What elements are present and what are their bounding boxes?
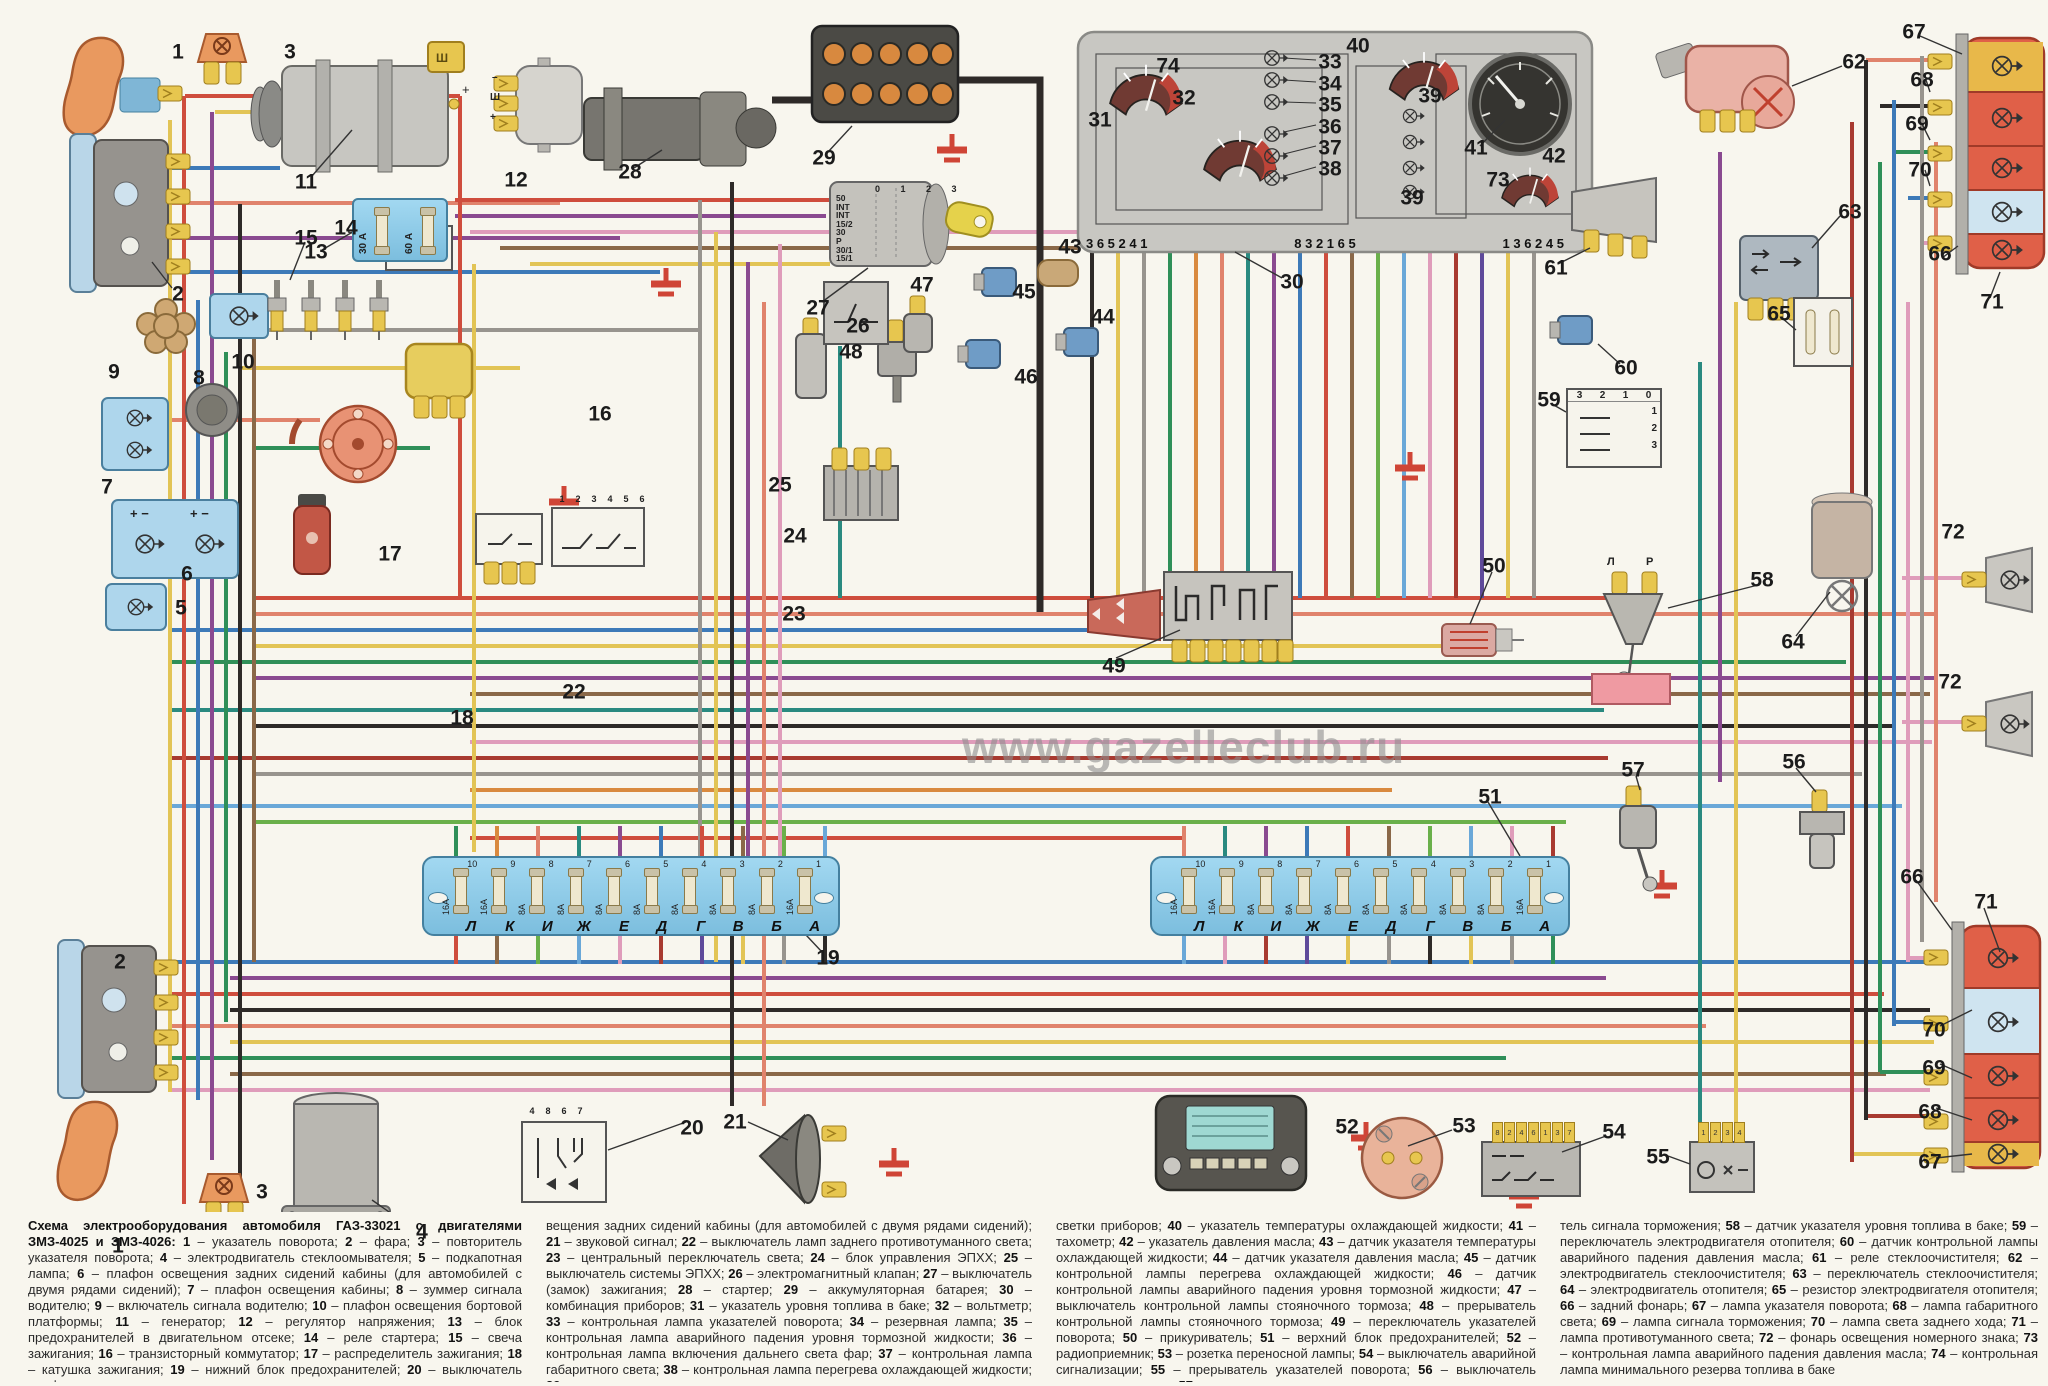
legend-column-4: тель сигнала торможения; 58 – датчик ука… <box>1560 1218 2038 1382</box>
turn-flasher <box>1690 1142 1754 1192</box>
lamp-switch-20 <box>522 1122 606 1202</box>
component-callout-44: 44 <box>1091 307 1114 328</box>
component-callout-19: 19 <box>816 948 839 969</box>
component-callout-17: 17 <box>378 544 401 565</box>
fuse-cell: 58АД <box>631 859 669 933</box>
component-callout-43: 43 <box>1058 237 1081 258</box>
heater-switch: 3210 123 <box>1566 388 1662 468</box>
component-callout-39: 39 <box>1400 188 1423 209</box>
component-callout-52: 52 <box>1335 1117 1358 1138</box>
component-callout-2: 2 <box>172 284 184 305</box>
component-callout-47: 47 <box>910 275 933 296</box>
component-callout-62: 62 <box>1842 52 1865 73</box>
legend-column-2: вещения задних сидений кабины (для автом… <box>546 1218 1032 1382</box>
component-callout-72: 72 <box>1941 522 1964 543</box>
component-callout-22: 22 <box>562 682 585 703</box>
switch20-pin-numbers: 4867 <box>524 1106 588 1116</box>
regulator-pin-sh: Ш <box>490 92 500 103</box>
component-callout-6: 6 <box>181 564 193 585</box>
fuse-cell: 88АИ <box>516 859 554 933</box>
regulator-pin-plus: + <box>490 112 496 123</box>
washer-motor <box>282 1093 390 1212</box>
component-callout-18: 18 <box>450 708 473 729</box>
component-callout-42: 42 <box>1542 146 1565 167</box>
fuse-cell: 38АВ <box>707 859 745 933</box>
component-callout-50: 50 <box>1482 556 1505 577</box>
component-callout-5: 5 <box>175 598 187 619</box>
engine-fuse: 60 А <box>408 200 438 260</box>
component-callout-41: 41 <box>1464 138 1487 159</box>
component-callout-2: 2 <box>114 952 126 973</box>
component-callout-65: 65 <box>1767 304 1790 325</box>
temp-sensor <box>1038 260 1078 286</box>
fuse-cell: 68АЕ <box>1322 859 1360 933</box>
svg-text:+ −: + − <box>130 506 149 521</box>
fuse-cell: 48АГ <box>1398 859 1436 933</box>
component-callout-29: 29 <box>812 148 835 169</box>
schematic-page: Ш + <box>0 0 2048 1386</box>
component-callout-57: 57 <box>1621 760 1644 781</box>
svg-text:+: + <box>462 82 470 97</box>
component-callout-64: 64 <box>1781 632 1804 653</box>
component-callout-3: 3 <box>256 1182 268 1203</box>
fuse-cell: 68АЕ <box>593 859 631 933</box>
upper-fuse-block: 1016АЛ916АК88АИ78АЖ68АЕ58АД48АГ38АВ28АБ1… <box>1150 856 1570 936</box>
component-callout-68: 68 <box>1910 70 1933 91</box>
component-callout-58: 58 <box>1750 570 1773 591</box>
component-callout-68: 68 <box>1918 1102 1941 1123</box>
component-callout-71: 71 <box>1974 892 1997 913</box>
component-callout-25: 25 <box>768 475 791 496</box>
component-callout-9: 9 <box>108 362 120 383</box>
component-callout-40: 40 <box>1346 36 1369 57</box>
switch23-pin-numbers: 123456 <box>554 494 650 504</box>
fuse-cell: 916АК <box>1206 859 1244 933</box>
component-callout-37: 37 <box>1318 138 1341 159</box>
engine-bay-fuse-block: 30 А60 А <box>352 198 448 262</box>
component-callout-27: 27 <box>806 298 829 319</box>
fuse-cell: 38АВ <box>1437 859 1475 933</box>
component-callout-28: 28 <box>618 162 641 183</box>
watermark: www.gazelleclub.ru <box>962 720 1405 774</box>
fuse-cell: 88АИ <box>1245 859 1283 933</box>
component-callout-26: 26 <box>846 316 869 337</box>
component-callout-3: 3 <box>284 42 296 63</box>
platform-lamp <box>210 294 268 338</box>
svg-text:+ −: + − <box>190 506 209 521</box>
component-callout-69: 69 <box>1922 1058 1945 1079</box>
component-callout-69: 69 <box>1905 114 1928 135</box>
sender-terminal-L: Л <box>1607 556 1615 568</box>
component-callout-67: 67 <box>1918 1152 1941 1173</box>
component-callout-1: 1 <box>172 42 184 63</box>
underhood-lamp <box>106 584 166 630</box>
portable-lamp-socket <box>1362 1118 1442 1198</box>
lower-fuse-block: 1016АЛ916АК88АИ78АЖ68АЕ58АД48АГ38АВ28АБ1… <box>422 856 840 936</box>
component-callout-8: 8 <box>193 368 205 389</box>
fog-lamp-switch <box>476 514 542 584</box>
legend-column-1: Схема электрооборудования автомобиля ГАЗ… <box>28 1218 522 1382</box>
component-callout-66: 66 <box>1900 867 1923 888</box>
transistor-commutator <box>406 344 472 418</box>
component-callout-39: 39 <box>1418 86 1441 107</box>
radio <box>1156 1096 1306 1190</box>
ephh-control-block <box>824 448 898 520</box>
fuse-cell: 916АК <box>478 859 516 933</box>
legend: Схема электрооборудования автомобиля ГАЗ… <box>0 1212 2048 1386</box>
legend-column-3: светки приборов; 40 – указатель температ… <box>1056 1218 1536 1382</box>
fuse-cell: 28АБ <box>1475 859 1513 933</box>
rear-seat-lamps: + −+ − <box>112 500 238 578</box>
fuse-cell: 78АЖ <box>1283 859 1321 933</box>
ignition-positions: 0 1 2 3 <box>875 184 966 194</box>
component-callout-54: 54 <box>1602 1122 1625 1143</box>
fuse-cell: 78АЖ <box>555 859 593 933</box>
component-callout-48: 48 <box>839 342 862 363</box>
component-callout-71: 71 <box>1980 292 2003 313</box>
component-callout-11: 11 <box>295 172 317 193</box>
component-callout-53: 53 <box>1452 1116 1475 1137</box>
engine-fuse: 30 А <box>362 200 392 260</box>
component-callout-59: 59 <box>1537 390 1560 411</box>
component-callout-63: 63 <box>1838 202 1861 223</box>
component-callout-66: 66 <box>1928 244 1951 265</box>
component-callout-74: 74 <box>1156 56 1179 77</box>
ignition-coil <box>294 494 330 574</box>
fuse-cell: 116АА <box>784 859 822 933</box>
ignition-terminals: 50INTINT15/230P30/115/1 <box>836 194 853 263</box>
component-callout-33: 33 <box>1318 52 1341 73</box>
sender-terminal-R: Р <box>1646 556 1653 568</box>
central-light-switch <box>552 508 644 566</box>
flasher-pins: 1234 <box>1698 1122 1745 1143</box>
component-callout-45: 45 <box>1012 282 1035 303</box>
cab-lamp <box>102 398 168 470</box>
fuse-cell: 28АБ <box>746 859 784 933</box>
component-callout-7: 7 <box>101 477 113 498</box>
fuse-cell: 116АА <box>1514 859 1552 933</box>
component-callout-61: 61 <box>1544 258 1567 279</box>
wiper-relay <box>1572 178 1656 258</box>
component-callout-16: 16 <box>588 404 611 425</box>
component-callout-70: 70 <box>1922 1020 1945 1041</box>
component-callout-73: 73 <box>1486 170 1509 191</box>
component-callout-34: 34 <box>1318 74 1341 95</box>
component-callout-20: 20 <box>680 1118 703 1139</box>
fuse-cell: 58АД <box>1360 859 1398 933</box>
component-callout-12: 12 <box>504 170 527 191</box>
component-callout-55: 55 <box>1646 1147 1669 1168</box>
heater-resistor <box>1794 298 1852 366</box>
fuse-cell: 48АГ <box>669 859 707 933</box>
component-callout-21: 21 <box>723 1112 746 1133</box>
component-callout-31: 31 <box>1088 110 1111 131</box>
component-callout-15: 15 <box>294 228 317 249</box>
component-callout-36: 36 <box>1318 117 1341 138</box>
component-callout-32: 32 <box>1172 88 1195 109</box>
component-callout-30: 30 <box>1280 272 1303 293</box>
component-callout-67: 67 <box>1902 22 1925 43</box>
fuse-cell: 1016АЛ <box>1168 859 1206 933</box>
fuse-cell: 1016АЛ <box>440 859 478 933</box>
component-callout-72: 72 <box>1938 672 1961 693</box>
component-callout-46: 46 <box>1014 367 1037 388</box>
svg-text:Ш: Ш <box>436 51 448 65</box>
component-callout-49: 49 <box>1102 656 1125 677</box>
regulator-pin-minus: – <box>492 72 498 83</box>
component-callout-24: 24 <box>783 526 806 547</box>
battery <box>812 26 958 122</box>
component-callout-35: 35 <box>1318 95 1341 116</box>
component-callout-60: 60 <box>1614 358 1637 379</box>
component-callout-38: 38 <box>1318 159 1341 180</box>
component-callout-51: 51 <box>1478 787 1501 808</box>
hazard-switch-pins: 8246137 <box>1492 1122 1575 1143</box>
cigarette-lighter <box>1442 624 1524 656</box>
component-callout-70: 70 <box>1908 160 1931 181</box>
component-callout-23: 23 <box>782 604 805 625</box>
driver-buzzer <box>186 384 238 436</box>
component-callout-10: 10 <box>231 352 254 373</box>
cluster-pin-numbers: 3 6 5 2 4 18 3 2 1 6 51 3 6 2 4 5 <box>1086 236 1564 251</box>
component-callout-56: 56 <box>1782 752 1805 773</box>
component-callout-14: 14 <box>334 218 357 239</box>
